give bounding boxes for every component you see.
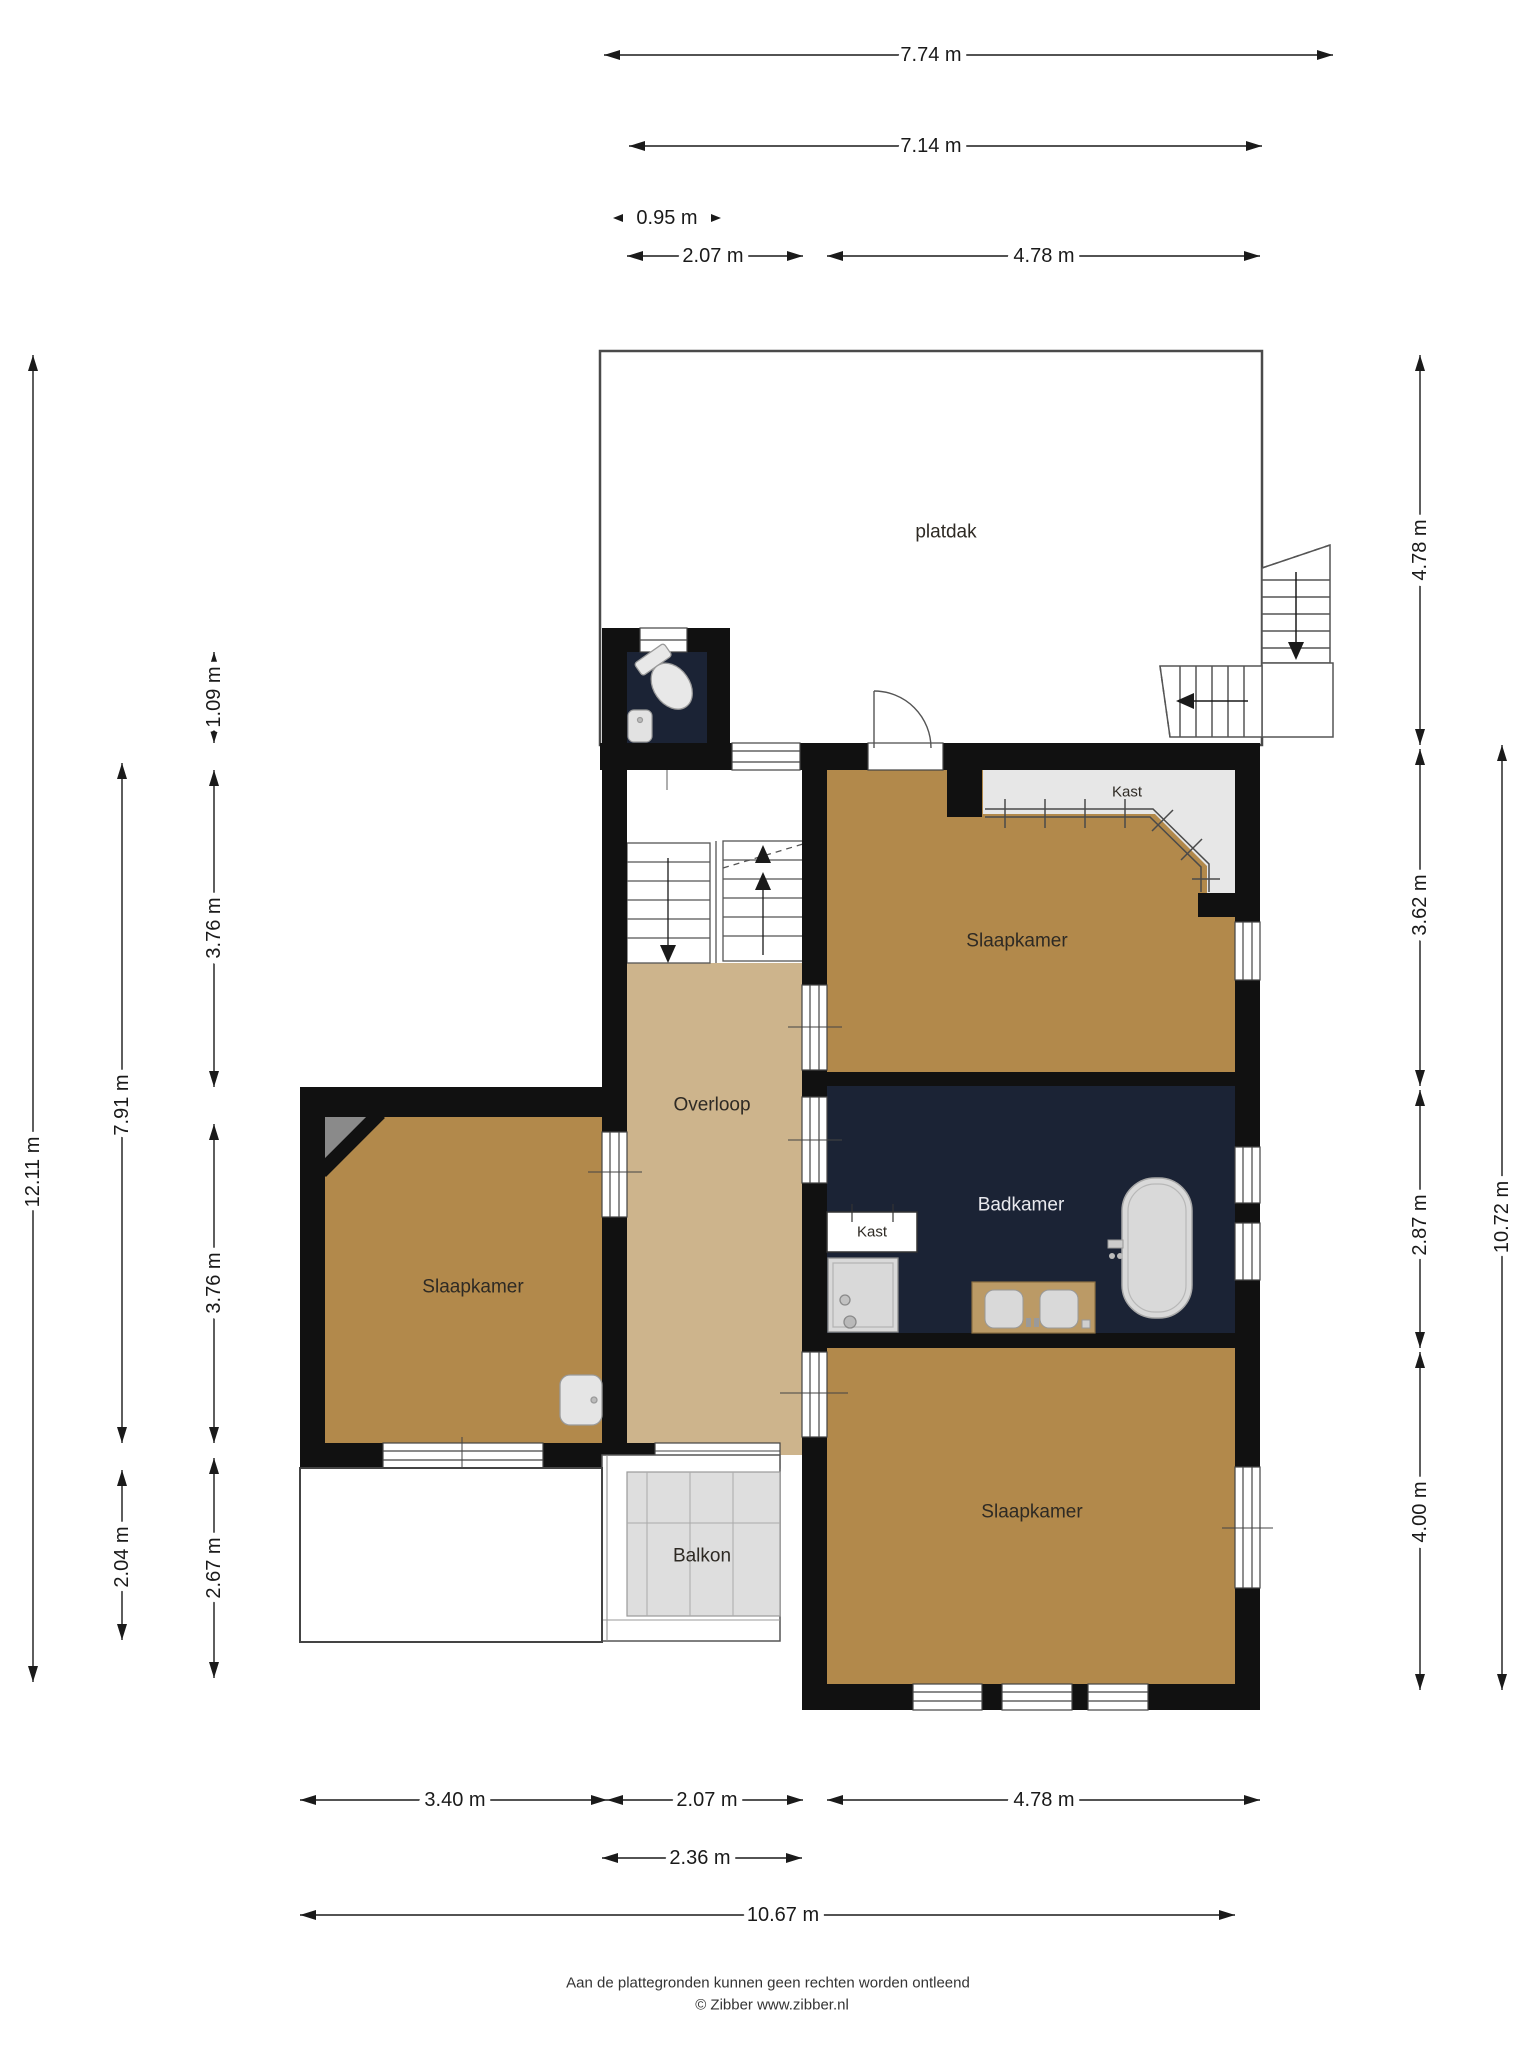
- svg-text:2.87 m: 2.87 m: [1409, 1194, 1431, 1255]
- dim-top-095: 0.95 m: [613, 207, 721, 229]
- dim-left-204: 2.04 m: [111, 1470, 133, 1640]
- dim-left-376b: 3.76 m: [203, 1124, 225, 1443]
- window-badkamer-right-2: [1235, 1223, 1260, 1280]
- window-bedroomb-bottom-3: [1088, 1684, 1148, 1710]
- dim-right-362: 3.62 m: [1409, 749, 1431, 1086]
- room-label-balkon: Balkon: [673, 1546, 731, 1567]
- room-label-slaapkamer-top-right: Slaapkamer: [966, 931, 1068, 952]
- window-top-wall: [732, 743, 800, 770]
- dim-right-400: 4.00 m: [1409, 1352, 1431, 1690]
- svg-text:2.07 m: 2.07 m: [682, 245, 743, 267]
- dim-top-774: 7.74 m: [604, 44, 1333, 66]
- svg-text:4.78 m: 4.78 m: [1013, 1789, 1074, 1811]
- dim-top-478: 4.78 m: [827, 245, 1260, 267]
- balcony: Balkon: [602, 1455, 780, 1641]
- dim-left-109: 1.09 m: [203, 652, 225, 743]
- svg-text:3.40 m: 3.40 m: [424, 1789, 485, 1811]
- window-badkamer-right-1: [1235, 1147, 1260, 1203]
- dim-top-714: 7.14 m: [629, 135, 1262, 157]
- room-label-platdak: platdak: [915, 522, 977, 543]
- dim-bottom-236: 2.36 m: [602, 1847, 802, 1869]
- svg-text:3.76 m: 3.76 m: [203, 1252, 225, 1313]
- room-label-kast-bedroom: Kast: [1112, 784, 1143, 801]
- svg-text:2.36 m: 2.36 m: [669, 1847, 730, 1869]
- svg-text:7.14 m: 7.14 m: [900, 135, 961, 157]
- svg-text:4.00 m: 4.00 m: [1409, 1481, 1431, 1542]
- svg-text:4.78 m: 4.78 m: [1409, 519, 1431, 580]
- shower-icon: [828, 1258, 898, 1332]
- vanity-sinks-icon: [972, 1282, 1095, 1333]
- window-bedroomb-bottom-2: [1002, 1684, 1072, 1710]
- dim-right-1072: 10.72 m: [1491, 745, 1513, 1690]
- lower-roof-terrace: [300, 1468, 602, 1642]
- room-label-kast-badkamer: Kast: [857, 1224, 888, 1241]
- footer-disclaimer: Aan de plattegronden kunnen geen rechten…: [566, 1975, 970, 1992]
- bedroom-sink-icon: [560, 1375, 602, 1425]
- svg-text:12.11 m: 12.11 m: [22, 1137, 44, 1208]
- dim-bottom-207: 2.07 m: [607, 1789, 803, 1811]
- floor-plan-page: platdak: [0, 0, 1536, 2048]
- room-label-slaapkamer-bottom: Slaapkamer: [981, 1502, 1083, 1523]
- svg-text:1.09 m: 1.09 m: [203, 666, 225, 727]
- svg-text:2.07 m: 2.07 m: [676, 1789, 737, 1811]
- dim-left-791: 7.91 m: [111, 763, 133, 1443]
- svg-text:4.78 m: 4.78 m: [1013, 245, 1074, 267]
- svg-text:0.95 m: 0.95 m: [636, 207, 697, 229]
- window-bedroomb-bottom-1: [913, 1684, 982, 1710]
- dim-top-207: 2.07 m: [627, 245, 803, 267]
- dim-bottom-478: 4.78 m: [827, 1789, 1260, 1811]
- dim-left-376a: 3.76 m: [203, 770, 225, 1087]
- room-label-slaapkamer-left: Slaapkamer: [422, 1277, 524, 1298]
- footer-copyright: © Zibber www.zibber.nl: [695, 1997, 849, 2014]
- interior-staircase: [627, 745, 803, 963]
- dim-left-267: 2.67 m: [203, 1458, 225, 1678]
- floor-plan: platdak: [0, 0, 1536, 2048]
- dim-right-287: 2.87 m: [1409, 1090, 1431, 1348]
- footer: Aan de plattegronden kunnen geen rechten…: [566, 1975, 970, 2014]
- room-label-badkamer: Badkamer: [978, 1195, 1065, 1216]
- dim-bottom-1067: 10.67 m: [300, 1904, 1235, 1926]
- svg-text:2.04 m: 2.04 m: [111, 1526, 133, 1587]
- dim-right-478: 4.78 m: [1409, 355, 1431, 745]
- room-label-overloop: Overloop: [673, 1095, 750, 1116]
- floor-overloop: [627, 963, 802, 1455]
- svg-text:10.72 m: 10.72 m: [1491, 1181, 1513, 1253]
- svg-text:3.62 m: 3.62 m: [1409, 874, 1431, 935]
- svg-text:7.91 m: 7.91 m: [111, 1074, 133, 1135]
- svg-text:7.74 m: 7.74 m: [900, 44, 961, 66]
- svg-text:3.76 m: 3.76 m: [203, 897, 225, 958]
- window-bedroomtr-right: [1235, 922, 1260, 980]
- dim-bottom-340: 3.40 m: [300, 1789, 607, 1811]
- svg-text:2.67 m: 2.67 m: [203, 1537, 225, 1598]
- dim-left-1211: 12.11 m: [22, 355, 44, 1682]
- svg-text:10.67 m: 10.67 m: [747, 1904, 819, 1926]
- wc-sink-icon: [628, 710, 652, 742]
